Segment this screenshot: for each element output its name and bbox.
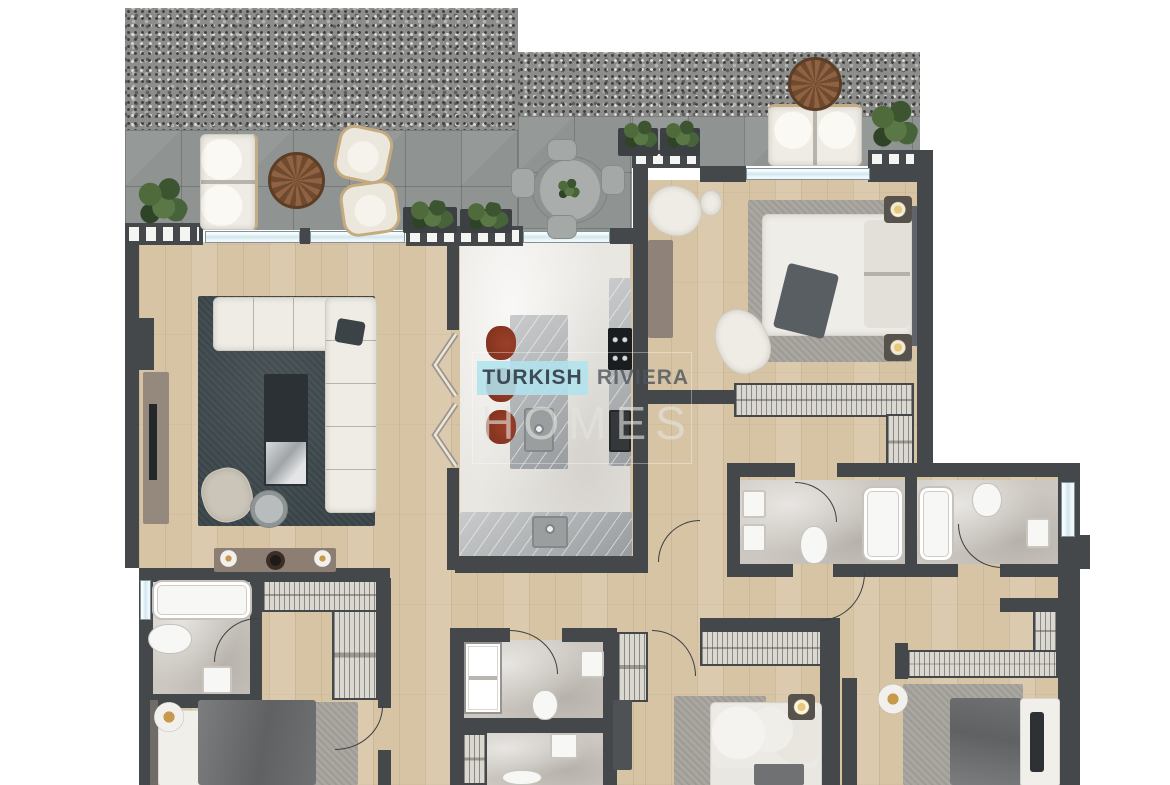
- wall: [447, 242, 459, 330]
- wall: [820, 618, 840, 785]
- shower: [464, 642, 502, 714]
- wall-pier: [139, 318, 154, 370]
- nightstand-lamp: [878, 684, 908, 714]
- walk-in-wardrobe: [262, 578, 378, 612]
- planter-greenery: [662, 120, 700, 150]
- wall: [378, 578, 391, 708]
- wall: [455, 556, 648, 573]
- toilet: [532, 690, 558, 720]
- wall: [837, 463, 1080, 477]
- wall: [917, 150, 933, 463]
- window: [140, 580, 151, 620]
- outdoor-dining-chair: [547, 215, 577, 239]
- toilet: [148, 624, 192, 654]
- bed-throw: [754, 764, 804, 785]
- bathtub: [918, 486, 954, 562]
- gravel-area: [125, 8, 518, 130]
- wardrobe-bedroom-1: [886, 414, 914, 470]
- washbasin: [1026, 518, 1050, 548]
- wall: [1000, 598, 1058, 612]
- washbasin: [550, 733, 578, 759]
- wardrobe-bedroom-3: [907, 650, 1058, 678]
- wall: [125, 228, 139, 568]
- nightstand-lamp: [788, 694, 815, 720]
- wall: [450, 628, 464, 785]
- wall-bump: [1080, 535, 1090, 569]
- bed-blanket: [950, 698, 1022, 785]
- exterior-area: [125, 568, 139, 785]
- folding-door-icon: [430, 332, 458, 398]
- watermark-secondary: RIVIERA: [596, 361, 690, 395]
- outdoor-dining-chair: [601, 165, 625, 195]
- toilet: [800, 526, 828, 564]
- floor-plan: TURKISH RIVIERA HOMES: [0, 0, 1170, 785]
- wall: [868, 166, 918, 182]
- faucet: [545, 524, 555, 534]
- coffee-table-marble: [266, 442, 306, 484]
- table-plant: [556, 178, 580, 200]
- wardrobe-bedroom-3: [1033, 610, 1058, 652]
- washbasin: [742, 524, 766, 552]
- outdoor-lounge-chair: [338, 178, 403, 239]
- round-coffee-table: [268, 152, 325, 209]
- wall: [700, 166, 746, 182]
- wall: [727, 564, 793, 577]
- outdoor-dining-chair: [547, 139, 577, 161]
- wall: [450, 718, 617, 733]
- planter-greenery: [620, 120, 658, 150]
- potted-plant: [868, 98, 918, 152]
- wall: [447, 468, 459, 570]
- toilet: [972, 483, 1002, 517]
- planter-greenery: [462, 202, 510, 230]
- potted-plant: [134, 176, 188, 228]
- exterior-area: [1080, 385, 1170, 785]
- wall: [895, 643, 908, 679]
- wall: [300, 228, 310, 244]
- wall: [378, 750, 391, 785]
- wall: [727, 463, 740, 577]
- wardrobe-hall: [617, 632, 648, 702]
- walk-in-wardrobe: [332, 610, 378, 700]
- window: [746, 168, 870, 180]
- wall: [842, 678, 857, 785]
- washbasin: [202, 666, 232, 694]
- watermark-primary: TURKISH: [477, 361, 588, 395]
- window: [205, 231, 300, 243]
- round-coffee-table: [788, 57, 842, 111]
- planter-greenery: [405, 200, 455, 230]
- wardrobe-bedroom-4: [700, 630, 822, 666]
- bathtub: [152, 580, 252, 620]
- nightstand-lamp: [884, 196, 912, 223]
- nightstand-lamp: [154, 702, 184, 732]
- terrace-railing: [868, 150, 918, 168]
- window: [1061, 482, 1075, 537]
- side-table: [250, 490, 288, 528]
- table-lamp: [314, 550, 331, 567]
- outdoor-dining-chair: [511, 168, 535, 198]
- toilet: [502, 770, 542, 785]
- washbasin: [742, 490, 766, 518]
- bed-throw: [1030, 712, 1044, 772]
- wall: [1058, 577, 1080, 785]
- washbasin: [580, 650, 604, 678]
- folding-door-icon: [430, 402, 458, 468]
- outdoor-sofa: [200, 134, 258, 230]
- wardrobe-bedroom-1: [734, 383, 914, 417]
- wall: [905, 477, 917, 577]
- exterior-area: [933, 385, 1080, 465]
- dresser: [648, 240, 673, 338]
- ottoman: [700, 190, 722, 216]
- watermark-tertiary: HOMES: [490, 394, 686, 452]
- dresser: [613, 700, 632, 770]
- decor-bowl: [266, 551, 285, 570]
- tv: [149, 404, 157, 480]
- bathtub: [862, 486, 904, 562]
- table-lamp: [220, 550, 237, 567]
- sofa-pillow: [334, 318, 366, 346]
- outdoor-sofa: [768, 104, 862, 166]
- bed-blanket: [198, 700, 316, 785]
- bed-pillows: [864, 220, 910, 328]
- nightstand-lamp: [884, 334, 912, 361]
